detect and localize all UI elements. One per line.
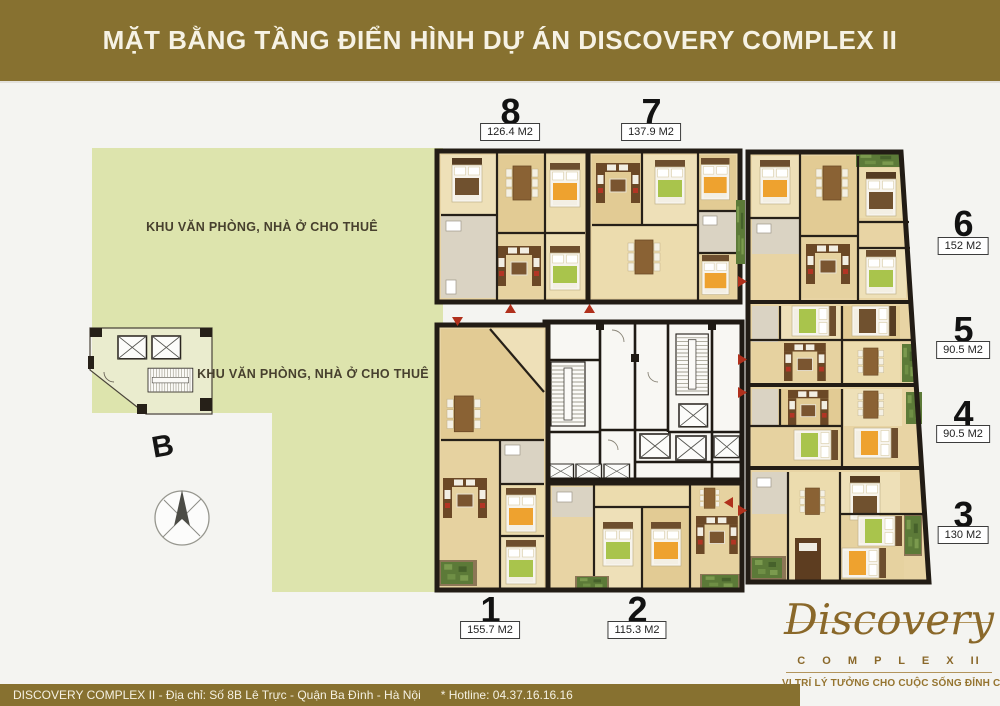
header-banner: MẶT BẰNG TẦNG ĐIỂN HÌNH DỰ ÁN DISCOVERY …	[0, 0, 1000, 83]
page-title: MẶT BẰNG TẦNG ĐIỂN HÌNH DỰ ÁN DISCOVERY …	[103, 25, 898, 56]
apartment-2-unit	[548, 483, 742, 590]
bed-icon	[760, 160, 790, 204]
planter-icon	[856, 153, 900, 167]
bed-icon	[854, 428, 898, 458]
planter-icon	[441, 562, 473, 584]
apartment-4-unit	[748, 389, 922, 468]
apartment-5-unit	[748, 306, 916, 385]
dining-table-icon	[858, 348, 884, 375]
elevator-icon	[604, 464, 630, 478]
planter-icon	[702, 575, 738, 589]
elevator-icon	[152, 336, 181, 359]
dining-table-icon	[628, 240, 660, 274]
elevator-icon	[676, 436, 706, 460]
unit-3-area: 130 M2	[938, 526, 989, 544]
entrance-marker-icon	[505, 304, 516, 313]
bed-icon	[550, 246, 580, 290]
dining-table-icon	[506, 166, 538, 200]
unit-6-area: 152 M2	[938, 237, 989, 255]
compass-icon	[155, 490, 209, 545]
bed-icon	[842, 548, 886, 578]
unit-4-area: 90.5 M2	[936, 425, 990, 443]
stairs-icon	[148, 368, 193, 392]
unit-8-area: 126.4 M2	[480, 123, 540, 141]
apartment-1-unit	[437, 325, 548, 590]
bed-icon	[452, 158, 482, 202]
bed-icon	[701, 158, 730, 200]
entrance-marker-icon	[584, 304, 595, 313]
dining-table-icon	[816, 166, 848, 200]
apartment-8-unit	[437, 151, 588, 302]
logo-rule-bottom	[786, 672, 992, 673]
stairs-icon	[676, 334, 708, 395]
planter-icon	[905, 516, 921, 554]
dining-table-icon	[447, 396, 481, 432]
dining-table-icon	[800, 488, 825, 515]
bed-icon	[702, 255, 729, 295]
footer-address: DISCOVERY COMPLEX II - Địa chỉ: Số 8B Lê…	[13, 688, 421, 702]
elevator-icon	[679, 404, 708, 427]
bed-icon	[603, 522, 633, 566]
planter-icon	[752, 558, 782, 578]
unit-5-area: 90.5 M2	[936, 341, 990, 359]
logo-script-name: Discovery	[782, 590, 996, 650]
elevator-icon	[548, 464, 574, 478]
bed-icon	[550, 163, 580, 207]
bed-icon	[655, 160, 685, 204]
unit-2-area: 115.3 M2	[607, 621, 666, 639]
planter-icon	[577, 577, 607, 589]
logo-numeral: II	[971, 655, 981, 667]
logo-complex-row: C O M P L E XII	[782, 655, 996, 667]
dining-table-icon	[858, 391, 884, 418]
bed-icon	[651, 522, 681, 566]
footer-bar: DISCOVERY COMPLEX II - Địa chỉ: Số 8B Lê…	[0, 684, 800, 706]
office-zone-label-1: KHU VĂN PHÒNG, NHÀ Ở CHO THUÊ	[146, 220, 378, 234]
page-root: MẶT BẰNG TẦNG ĐIỂN HÌNH DỰ ÁN DISCOVERY …	[0, 0, 1000, 706]
bed-icon	[852, 306, 896, 336]
central-core	[545, 322, 742, 480]
bed-icon	[506, 488, 536, 532]
logo-complex-label: C O M P L E X	[797, 655, 960, 667]
bed-icon	[866, 172, 896, 216]
unit-7-area: 137.9 M2	[621, 123, 681, 141]
logo-tagline: VỊ TRÍ LÝ TƯỞNG CHO CUỘC SỐNG ĐỈNH CAO	[782, 678, 996, 689]
bed-icon	[506, 540, 536, 584]
right-wing	[748, 152, 929, 582]
elevator-icon	[576, 464, 602, 478]
brand-logo: Discovery C O M P L E XII VỊ TRÍ LÝ TƯỞN…	[782, 596, 996, 700]
bed-icon	[858, 516, 902, 546]
footer-hotline: * Hotline: 04.37.16.16.16	[441, 688, 573, 702]
dining-table-icon	[700, 488, 719, 508]
unit-1-area: 155.7 M2	[460, 621, 520, 639]
planter-icon	[736, 200, 745, 264]
office-zone-label-2: KHU VĂN PHÒNG, NHÀ Ở CHO THUÊ	[197, 367, 429, 381]
apartment-7-unit	[588, 151, 740, 302]
stairs-icon	[551, 362, 585, 426]
bed-icon	[792, 306, 836, 336]
bed-icon	[866, 250, 896, 294]
elevator-icon	[118, 336, 147, 359]
elevator-icon	[714, 436, 740, 458]
elevator-icon	[640, 434, 670, 458]
bed-icon	[794, 430, 838, 460]
